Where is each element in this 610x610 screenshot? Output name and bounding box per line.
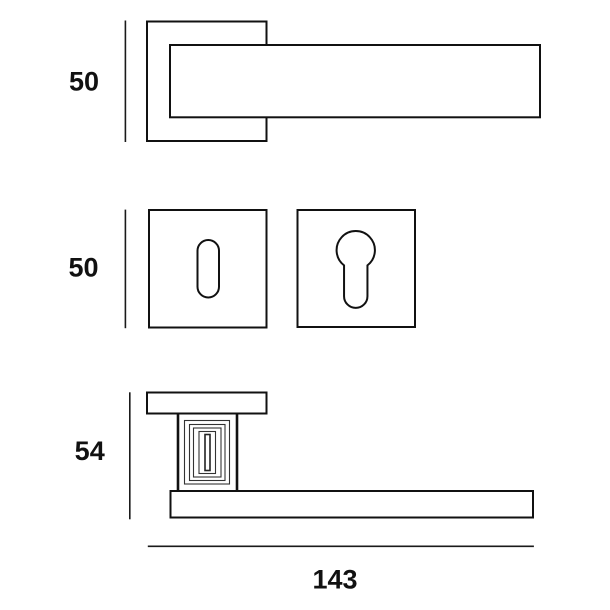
svg-text:50: 50 <box>68 253 98 283</box>
svg-text:50: 50 <box>69 66 99 96</box>
svg-text:143: 143 <box>312 565 357 595</box>
svg-text:54: 54 <box>75 436 105 466</box>
